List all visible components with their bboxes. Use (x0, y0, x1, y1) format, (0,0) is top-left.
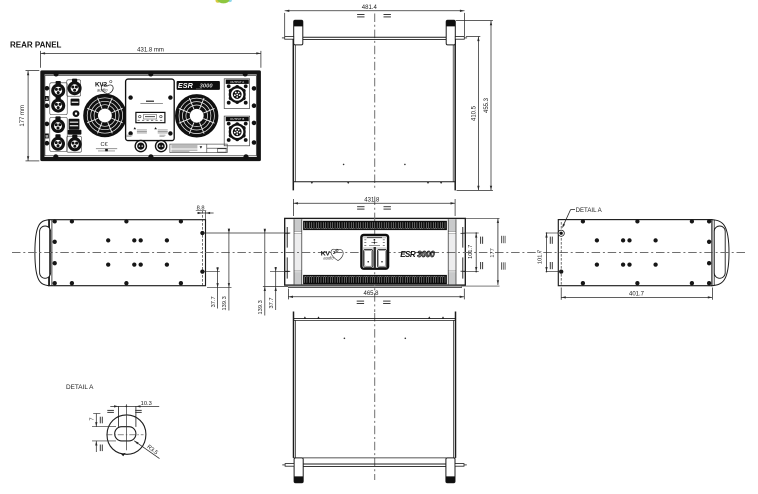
svg-text:3000: 3000 (417, 250, 435, 259)
svg-text:431.8 mm: 431.8 mm (137, 48, 164, 54)
svg-text:REAR PANEL: REAR PANEL (10, 41, 62, 50)
svg-text:ESR: ESR (400, 250, 416, 259)
svg-text:ESR: ESR (178, 81, 194, 90)
svg-text:431.8: 431.8 (364, 198, 380, 204)
svg-text:B: B (46, 134, 49, 138)
svg-text:177 mm: 177 mm (20, 105, 26, 127)
svg-text:139.3: 139.3 (222, 296, 228, 310)
svg-text:DETAIL A: DETAIL A (576, 207, 603, 214)
svg-text:481.4: 481.4 (362, 5, 378, 11)
svg-text:C€: C€ (101, 142, 109, 148)
svg-text:37.7: 37.7 (211, 296, 217, 307)
svg-text:7: 7 (90, 417, 96, 420)
svg-text:OUTPUT A: OUTPUT A (230, 80, 244, 84)
svg-text:37.7: 37.7 (269, 297, 275, 308)
svg-text:410.5: 410.5 (471, 105, 477, 121)
svg-text:10.3: 10.3 (141, 401, 152, 407)
svg-text:3000: 3000 (200, 84, 214, 90)
svg-text:101.7: 101.7 (537, 250, 543, 264)
svg-text:DETAIL A: DETAIL A (66, 384, 94, 391)
svg-text:A: A (46, 97, 49, 101)
svg-text:audio: audio (97, 87, 108, 92)
svg-text:455.3: 455.3 (484, 97, 490, 113)
svg-text:101.7: 101.7 (468, 245, 474, 259)
svg-text:139.3: 139.3 (258, 300, 264, 314)
svg-text:OUTPUT B: OUTPUT B (230, 117, 244, 121)
svg-text:401.7: 401.7 (629, 292, 645, 298)
svg-text:465.8: 465.8 (363, 291, 379, 297)
svg-text:177: 177 (490, 248, 496, 258)
